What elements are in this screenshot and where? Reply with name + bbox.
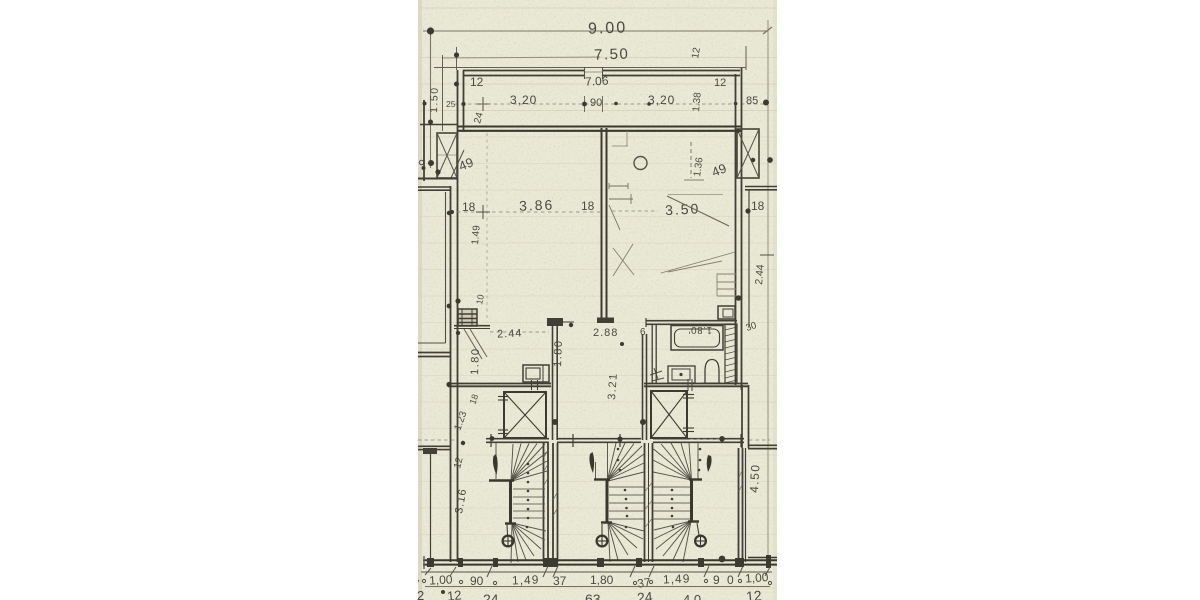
svg-text:90: 90: [470, 574, 484, 588]
svg-text:3.21: 3.21: [606, 372, 620, 400]
svg-text:1.38: 1.38: [691, 91, 704, 112]
svg-text:3,20: 3,20: [648, 93, 675, 107]
svg-text:9 0: 9 0: [713, 573, 736, 587]
svg-text:,: ,: [417, 573, 420, 584]
svg-text:7.06: 7.06: [585, 74, 609, 89]
svg-text:12: 12: [745, 587, 762, 600]
svg-text:2: 2: [417, 588, 424, 600]
svg-text:12: 12: [470, 75, 484, 89]
svg-text:12: 12: [446, 587, 462, 600]
svg-text:4.0: 4.0: [683, 592, 701, 600]
svg-text:9.00: 9.00: [588, 19, 628, 37]
svg-text:7.50: 7.50: [594, 46, 630, 64]
svg-text:3,20: 3,20: [510, 93, 537, 107]
svg-text:18: 18: [751, 199, 765, 213]
svg-text:1,49: 1,49: [512, 573, 540, 588]
svg-text:1.80: 1.80: [469, 347, 482, 375]
svg-text:25: 25: [446, 99, 456, 109]
svg-text:90: 90: [590, 97, 602, 109]
svg-text:1,80: 1,80: [590, 573, 614, 587]
svg-text:1,49: 1,49: [663, 572, 691, 587]
svg-text:63: 63: [585, 591, 601, 600]
svg-text:1,00: 1,00: [429, 572, 453, 587]
svg-text:2.44: 2.44: [497, 327, 523, 340]
svg-text:24: 24: [483, 591, 499, 600]
svg-text:24: 24: [636, 589, 653, 600]
svg-text:1,00: 1,00: [745, 570, 770, 586]
svg-text:4.50: 4.50: [747, 463, 763, 493]
svg-text:85: 85: [746, 95, 758, 107]
svg-text:1.50: 1.50: [428, 86, 441, 113]
svg-text:18: 18: [462, 200, 476, 214]
svg-text:2.44: 2.44: [753, 264, 767, 286]
svg-text:3.86: 3.86: [519, 197, 555, 214]
svg-text:37: 37: [553, 574, 567, 588]
svg-text:1.49: 1.49: [470, 224, 483, 245]
svg-text:1.80': 1.80': [688, 324, 712, 335]
svg-text:1.80: 1.80: [552, 339, 565, 367]
svg-text:2.88: 2.88: [593, 327, 618, 339]
svg-text:12: 12: [714, 77, 726, 89]
svg-text:18: 18: [581, 199, 595, 213]
svg-text:10: 10: [474, 294, 486, 306]
